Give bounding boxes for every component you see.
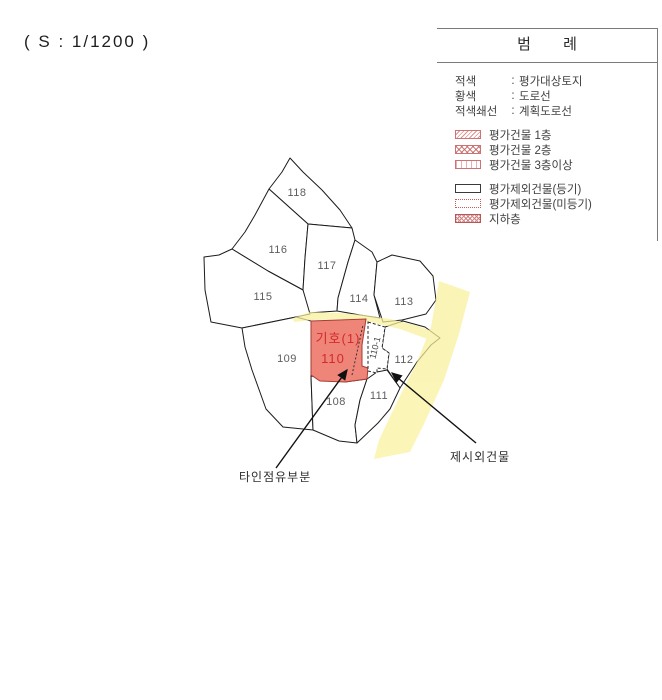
parcel-label-108: 108 [326, 396, 346, 408]
outside-building-label: 제시외건물 [450, 450, 510, 464]
parcel-109 [242, 317, 313, 430]
appraisal-map-page: { "scale_label": "( S : 1/1200 )", "lege… [0, 0, 662, 700]
subject-number-label: 110 [321, 351, 345, 366]
parcel-label-109: 109 [277, 353, 297, 365]
parcel-label-118: 118 [287, 187, 306, 199]
parcel-label-116: 116 [268, 244, 287, 256]
occupied-portion-label: 타인점유부분 [239, 470, 311, 484]
parcel-113 [374, 255, 436, 322]
parcel-label-117: 117 [317, 260, 336, 272]
subject-marker-label: 기호(1) [316, 331, 361, 346]
parcel-label-112: 112 [394, 354, 413, 366]
parcel-label-111: 111 [370, 390, 388, 402]
cadastral-map: 118 116 117 115 114 113 109 112 108 111 … [0, 0, 662, 700]
parcel-label-115: 115 [253, 291, 272, 303]
parcel-label-114: 114 [349, 293, 368, 305]
parcel-label-113: 113 [394, 296, 413, 308]
